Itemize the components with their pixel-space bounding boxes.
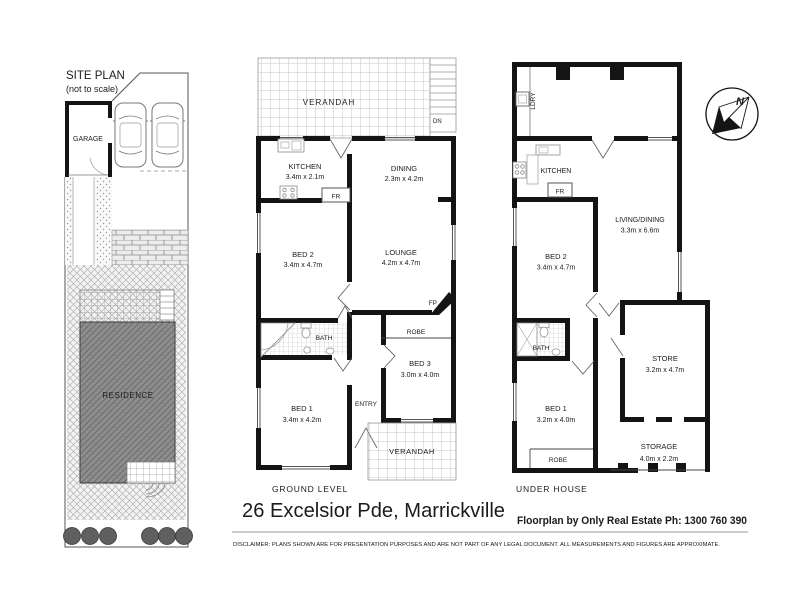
floorplan-credit: Floorplan by Only Real Estate Ph: 1300 7… — [517, 515, 747, 527]
uh-bed1-label: BED 1 — [545, 404, 567, 413]
garage-label: GARAGE — [73, 136, 103, 143]
floorplan-page: SITE PLAN (not to scale) GARAGE — [0, 0, 800, 600]
uh-basin — [552, 349, 560, 355]
car-2 — [150, 103, 185, 167]
uh-living-label: LIVING/DINING — [615, 217, 664, 224]
gl-vanity — [326, 348, 334, 354]
gl-bed3-dims: 3.0m x 4.0m — [401, 372, 440, 379]
gl-toilet — [301, 323, 311, 328]
gl-kitchen-label: KITCHEN — [289, 162, 322, 171]
uh-storage-label: STORAGE — [641, 442, 678, 451]
garage: GARAGE — [65, 101, 112, 177]
gl-bathroom — [261, 323, 347, 357]
compass-icon: N — [706, 88, 758, 140]
uh-robe-label: ROBE — [549, 457, 568, 464]
uh-store-label: STORE — [652, 354, 678, 363]
gl-dining-dims: 2.3m x 4.2m — [385, 176, 424, 183]
gl-entry-label: ENTRY — [355, 401, 378, 408]
gl-basin — [304, 347, 310, 353]
residence-label: RESIDENCE — [102, 391, 153, 400]
hedge-trees — [64, 528, 193, 545]
gl-verandah-top-label: VERANDAH — [303, 98, 355, 107]
uh-bed2-dims: 3.4m x 4.7m — [537, 265, 576, 272]
gl-dn-label: DN — [433, 119, 442, 125]
gl-robe-label: ROBE — [407, 329, 426, 336]
uh-store-dims: 3.2m x 4.7m — [646, 367, 685, 374]
ground-level-plan: DN — [256, 58, 456, 494]
gl-fr-label: FR — [332, 194, 341, 201]
residence-block: RESIDENCE — [80, 290, 175, 497]
uh-bath-label: BATH — [533, 345, 550, 352]
gl-bath-label: BATH — [316, 335, 333, 342]
floorplan-canvas: SITE PLAN (not to scale) GARAGE — [0, 0, 800, 600]
gl-lounge-dims: 4.2m x 4.7m — [382, 260, 421, 267]
footer: 26 Excelsior Pde, Marrickville Floorplan… — [232, 500, 748, 548]
address-title: 26 Excelsior Pde, Marrickville — [242, 500, 505, 522]
car-1 — [113, 103, 148, 167]
gl-dining-label: DINING — [391, 164, 417, 173]
gl-bed1-dims: 3.4m x 4.2m — [283, 417, 322, 424]
uh-kitchen-label: KITCHEN — [541, 168, 572, 175]
site-verandah-rear — [127, 462, 175, 483]
gl-fp-label: FP — [429, 300, 437, 307]
uh-kitchen-fixtures — [513, 145, 560, 184]
compass-north-label: N — [736, 96, 745, 108]
gl-bed1-label: BED 1 — [291, 404, 313, 413]
gl-bed2-label: BED 2 — [292, 250, 314, 259]
site-plan-title: SITE PLAN — [66, 70, 125, 82]
under-house-plan: LDRY — [512, 62, 710, 494]
uh-bed2-label: BED 2 — [545, 252, 567, 261]
uh-living-dims: 3.3m x 6.6m — [621, 228, 660, 235]
ground-level-caption: GROUND LEVEL — [272, 484, 348, 494]
gl-kitchen-dims: 3.4m x 2.1m — [286, 174, 325, 181]
uh-washer — [516, 92, 529, 106]
uh-laundry: LDRY — [516, 67, 537, 136]
uh-storage-dims: 4.0m x 2.2m — [640, 456, 679, 463]
gl-labels: VERANDAH KITCHEN 3.4m x 2.1m DINING 2.3m… — [283, 98, 440, 456]
gl-lounge-label: LOUNGE — [385, 248, 417, 257]
under-house-caption: UNDER HOUSE — [516, 484, 588, 494]
uh-laundry-label: LDRY — [530, 92, 537, 110]
disclaimer-text: DISCLAIMER: PLANS SHOWN ARE FOR PRESENTA… — [233, 542, 720, 548]
site-plan: SITE PLAN (not to scale) GARAGE — [64, 70, 193, 547]
gl-bed2-dims: 3.4m x 4.7m — [284, 262, 323, 269]
gl-bed3-label: BED 3 — [409, 359, 431, 368]
uh-bed1-dims: 3.2m x 4.0m — [537, 417, 576, 424]
site-plan-subtitle: (not to scale) — [66, 84, 118, 94]
uh-fr-label: FR — [556, 189, 565, 196]
gl-verandah-bottom-label: VERANDAH — [389, 447, 435, 456]
gl-stairs-down: DN — [430, 58, 456, 132]
